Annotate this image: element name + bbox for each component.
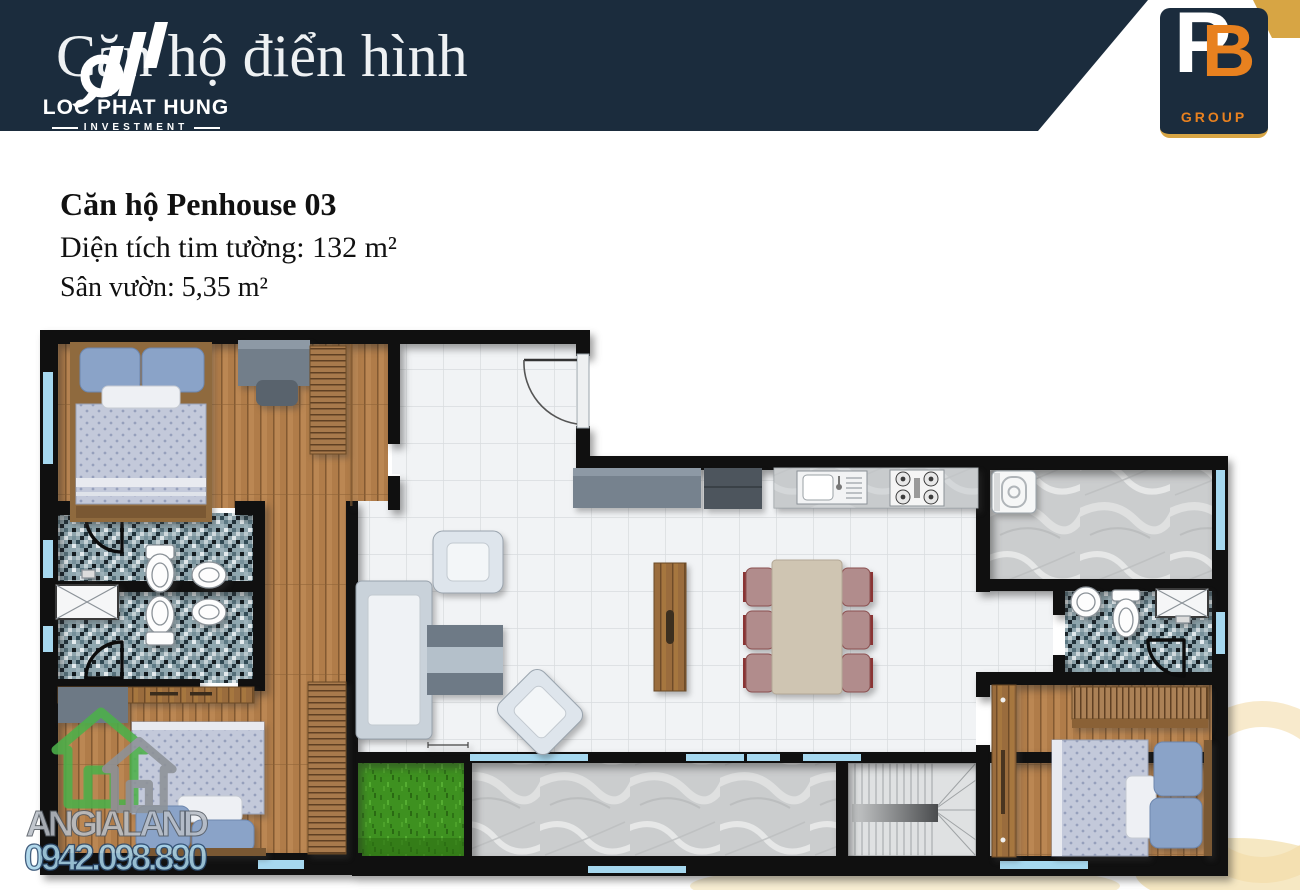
laundry	[992, 471, 1036, 513]
hallway-floor	[265, 505, 348, 691]
entry-floor	[392, 344, 576, 474]
pillow	[1154, 742, 1202, 796]
dining-chair	[746, 611, 774, 649]
brand-tagline: INVESTMENT	[38, 122, 234, 133]
slide-page: ANGIALAND 0942.098.890 Căn hộ điển hình …	[0, 0, 1300, 890]
sofa-seat	[368, 595, 420, 725]
logo-letter-b: B	[1202, 14, 1255, 88]
dining-chair	[746, 654, 774, 692]
stove	[890, 470, 944, 506]
logo-group-label: GROUP	[1160, 109, 1268, 125]
sink-a	[192, 562, 226, 588]
dining-table	[772, 560, 842, 694]
bed-headboard-3	[1204, 740, 1212, 856]
floor-plan: ANGIALAND 0942.098.890	[0, 0, 1300, 890]
pillow	[1150, 798, 1202, 848]
wardrobe-3-shelf	[1072, 719, 1208, 728]
desk-chair	[256, 380, 298, 406]
dining-chair	[842, 654, 870, 692]
unit-info: Căn hộ Penhouse 03 Diện tích tim tường: …	[60, 186, 397, 311]
wardrobe-3	[1072, 687, 1208, 719]
tagline-rule	[52, 127, 78, 129]
toilet-b	[146, 596, 174, 634]
terrace-floor	[472, 763, 836, 858]
unit-garden-area: Sân vườn: 5,35 m²	[60, 272, 397, 304]
sink-b	[192, 599, 226, 625]
living-floor	[400, 468, 976, 755]
wardrobe-1	[310, 346, 346, 454]
pillow-white	[102, 386, 180, 408]
pillow	[142, 348, 204, 392]
tagline-rule	[194, 127, 220, 129]
dining-set	[743, 560, 873, 694]
shower-tray-b	[56, 585, 118, 619]
watermark-phone: 0942.098.890	[24, 837, 208, 878]
unit-wall-area: Diện tích tim tường: 132 m²	[60, 231, 397, 265]
kitchen	[573, 468, 978, 509]
unit-name: Căn hộ Penhouse 03	[60, 186, 397, 223]
bed-footboard-1	[76, 506, 206, 518]
dining-chair	[746, 568, 774, 606]
fridge	[704, 468, 762, 509]
faucet-c	[1176, 616, 1190, 623]
dining-chair	[842, 568, 870, 606]
brand-logo-icon	[60, 18, 220, 108]
wardrobe-2	[308, 682, 346, 854]
brand-name: LOC PHAT HUNG	[38, 96, 234, 120]
bed-duvet-1	[76, 404, 206, 504]
tv-sideboard	[654, 563, 686, 691]
pb-group-logo: P B GROUP	[1160, 8, 1268, 138]
faucet-a	[82, 570, 95, 578]
pillow	[80, 348, 140, 392]
garden-shade	[358, 838, 464, 858]
kitchen-sink	[797, 471, 867, 504]
corridor-floor	[976, 591, 1053, 672]
coffee-table	[427, 625, 503, 695]
shower-tray-c	[1156, 589, 1208, 617]
brand-tagline-text: INVESTMENT	[84, 122, 188, 133]
sink-c	[1071, 587, 1101, 617]
dining-chair	[842, 611, 870, 649]
